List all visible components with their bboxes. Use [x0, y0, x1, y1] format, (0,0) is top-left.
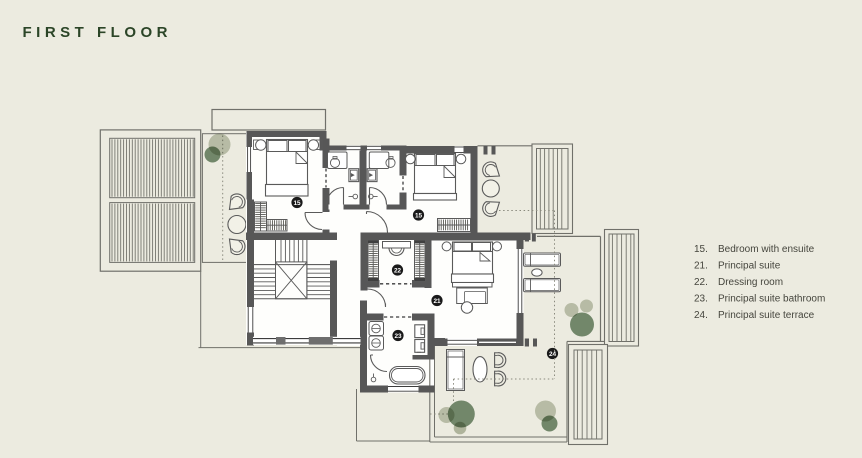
svg-text:22.: 22.: [694, 277, 708, 288]
svg-text:23.: 23.: [694, 294, 708, 305]
svg-text:21.: 21.: [694, 261, 708, 272]
svg-text:Bedroom with ensuite: Bedroom with ensuite: [718, 244, 815, 255]
svg-text:15: 15: [293, 200, 301, 207]
svg-text:Principal suite bathroom: Principal suite bathroom: [718, 294, 825, 305]
svg-text:21: 21: [433, 298, 441, 305]
svg-text:FIRST FLOOR: FIRST FLOOR: [23, 24, 173, 41]
svg-text:Principal suite: Principal suite: [718, 261, 781, 272]
svg-text:15: 15: [415, 212, 423, 219]
svg-text:22: 22: [394, 267, 402, 274]
svg-text:24: 24: [549, 351, 557, 358]
svg-text:15.: 15.: [694, 244, 708, 255]
svg-text:Principal suite terrace: Principal suite terrace: [718, 310, 815, 321]
svg-text:24.: 24.: [694, 310, 708, 321]
svg-text:23: 23: [394, 333, 402, 340]
svg-text:Dressing room: Dressing room: [718, 277, 783, 288]
